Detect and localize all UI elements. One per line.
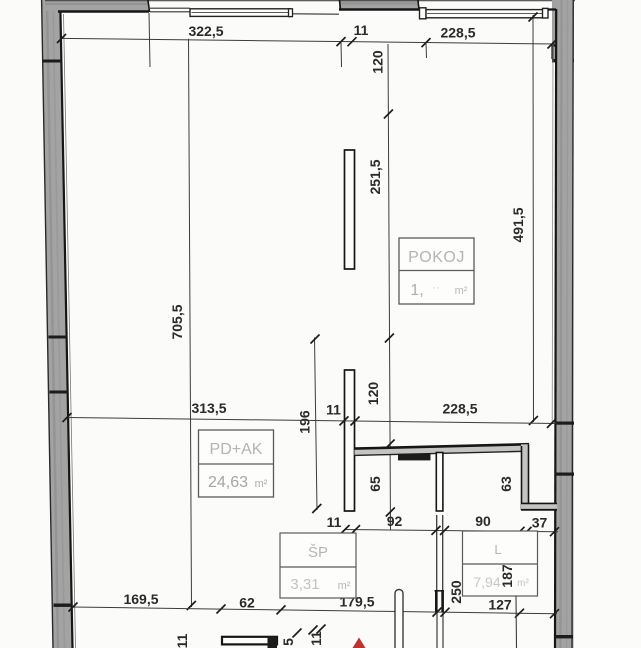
svg-text:11: 11 [174, 633, 190, 648]
svg-text:11: 11 [326, 402, 341, 418]
svg-text:63: 63 [498, 476, 514, 492]
svg-text:65: 65 [367, 476, 383, 492]
svg-text:705,5: 705,5 [169, 304, 185, 339]
svg-text:m²: m² [338, 580, 351, 592]
svg-text:m²: m² [255, 478, 268, 490]
svg-text:37: 37 [532, 515, 548, 531]
svg-text:1,: 1, [410, 282, 423, 299]
svg-text:L: L [494, 542, 501, 557]
svg-text:322,5: 322,5 [188, 23, 223, 39]
svg-text:7,94: 7,94 [473, 574, 500, 590]
svg-text:··: ·· [432, 280, 440, 294]
svg-text:m²: m² [517, 578, 529, 589]
svg-text:127: 127 [488, 597, 512, 613]
svg-text:196: 196 [297, 410, 313, 434]
svg-text:120: 120 [370, 50, 386, 74]
svg-text:11: 11 [327, 514, 342, 530]
svg-text:62: 62 [239, 595, 255, 611]
svg-text:250: 250 [448, 580, 464, 604]
svg-text:251,5: 251,5 [367, 159, 383, 194]
svg-text:m²: m² [455, 285, 468, 297]
svg-text:491,5: 491,5 [510, 207, 526, 242]
svg-text:3,31: 3,31 [290, 576, 319, 593]
svg-text:ŠP: ŠP [308, 544, 328, 561]
svg-text:169,5: 169,5 [123, 591, 158, 607]
svg-text:92: 92 [387, 513, 403, 529]
svg-text:187: 187 [499, 564, 515, 588]
svg-text:24,63: 24,63 [208, 474, 248, 491]
svg-text:120: 120 [365, 382, 381, 406]
svg-text:90: 90 [475, 513, 491, 529]
svg-text:POKOJ: POKOJ [408, 249, 465, 266]
svg-text:228,5: 228,5 [440, 25, 475, 41]
svg-text:11: 11 [354, 22, 369, 38]
svg-text:228,5: 228,5 [442, 401, 477, 417]
svg-text:313,5: 313,5 [191, 400, 226, 416]
svg-text:PD+AK: PD+AK [210, 441, 263, 458]
svg-text:5: 5 [280, 638, 296, 646]
